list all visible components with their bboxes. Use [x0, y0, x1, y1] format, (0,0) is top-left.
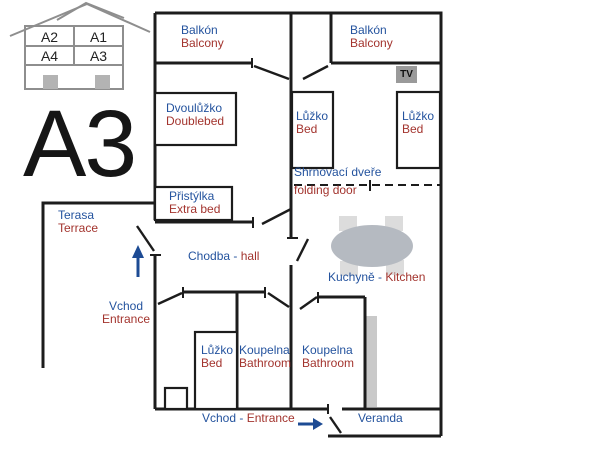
label-czech: Chodba -	[188, 249, 237, 263]
door-swing	[330, 417, 341, 433]
entrance-right-arrowhead	[313, 418, 323, 430]
door-swing	[303, 66, 328, 79]
room-label-bathroom-2: Koupelna Bathroom	[302, 344, 354, 370]
tv-label: TV	[396, 66, 417, 83]
door-swing	[262, 209, 291, 224]
door-swing	[137, 226, 154, 251]
room-label-bed-bottom: Lůžko Bed	[201, 344, 233, 370]
label-english: Balcony	[181, 37, 224, 50]
room-label-entrance-side: Vchod Entrance	[100, 300, 152, 326]
floorplan-canvas: A2 A1 A4 A3 A3 Balkón Balcony Balkón Bal…	[0, 0, 600, 450]
door-swing	[254, 66, 289, 79]
room-label-kitchen: Kuchyně - Kitchen	[328, 271, 425, 284]
building-door-square	[43, 75, 58, 89]
door-swing	[158, 293, 182, 304]
label-english: Doublebed	[166, 115, 224, 128]
building-door-square	[95, 75, 110, 89]
label-english: Kitchen	[385, 270, 425, 284]
room-label-terrace: Terasa Terrace	[58, 209, 98, 235]
room-label-extra-bed: Přistýlka Extra bed	[169, 190, 220, 216]
label-english: Terrace	[58, 222, 98, 235]
door-swing	[297, 239, 308, 261]
building-overview-icon	[10, 3, 150, 89]
room-label-balcony-left: Balkón Balcony	[181, 24, 224, 50]
room-label-bathroom-1: Koupelna Bathroom	[239, 344, 291, 370]
label-english: Balcony	[350, 37, 393, 50]
label-english: Bed	[402, 123, 434, 136]
room-label-veranda: Veranda	[358, 412, 403, 425]
room-label-hall: Chodba - hall	[188, 250, 259, 263]
label-czech: Vchod -	[202, 411, 243, 425]
label-czech: Shrnovací dveře	[294, 166, 381, 179]
room-label-entrance-bottom: Vchod - Entrance	[202, 412, 295, 425]
label-english: Bed	[296, 123, 328, 136]
entrance-up-arrowhead	[132, 245, 144, 258]
room-label-bed-top-right: Lůžko Bed	[402, 110, 434, 136]
label-english: Bed	[201, 357, 233, 370]
door-swing	[268, 293, 289, 307]
label-czech: Veranda	[358, 411, 403, 425]
room-label-bed-top-left: Lůžko Bed	[296, 110, 328, 136]
label-english: Entrance	[247, 411, 295, 425]
label-english: hall	[241, 249, 260, 263]
room-label-doublebed: Dvoulůžko Doublebed	[166, 102, 224, 128]
door-swing	[300, 297, 317, 309]
wall-strip	[366, 316, 377, 407]
label-english: folding door	[294, 184, 357, 197]
kitchen-table	[331, 225, 413, 267]
building-unit-a1: A1	[74, 29, 123, 45]
label-czech: Kuchyně -	[328, 270, 382, 284]
kitchen-furniture	[331, 216, 413, 407]
apartment-title: A3	[23, 97, 135, 192]
building-unit-a4: A4	[25, 48, 74, 64]
room-label-balcony-right: Balkón Balcony	[350, 24, 393, 50]
cabinet-rect	[165, 388, 187, 409]
label-english: Entrance	[100, 313, 152, 326]
folding-door-label-english: folding door	[294, 184, 357, 197]
building-unit-a2: A2	[25, 29, 74, 45]
building-unit-a3: A3	[74, 48, 123, 64]
folding-door-label-czech: Shrnovací dveře	[294, 166, 381, 179]
label-english: Bathroom	[302, 357, 354, 370]
label-english: Extra bed	[169, 203, 220, 216]
label-english: Bathroom	[239, 357, 291, 370]
